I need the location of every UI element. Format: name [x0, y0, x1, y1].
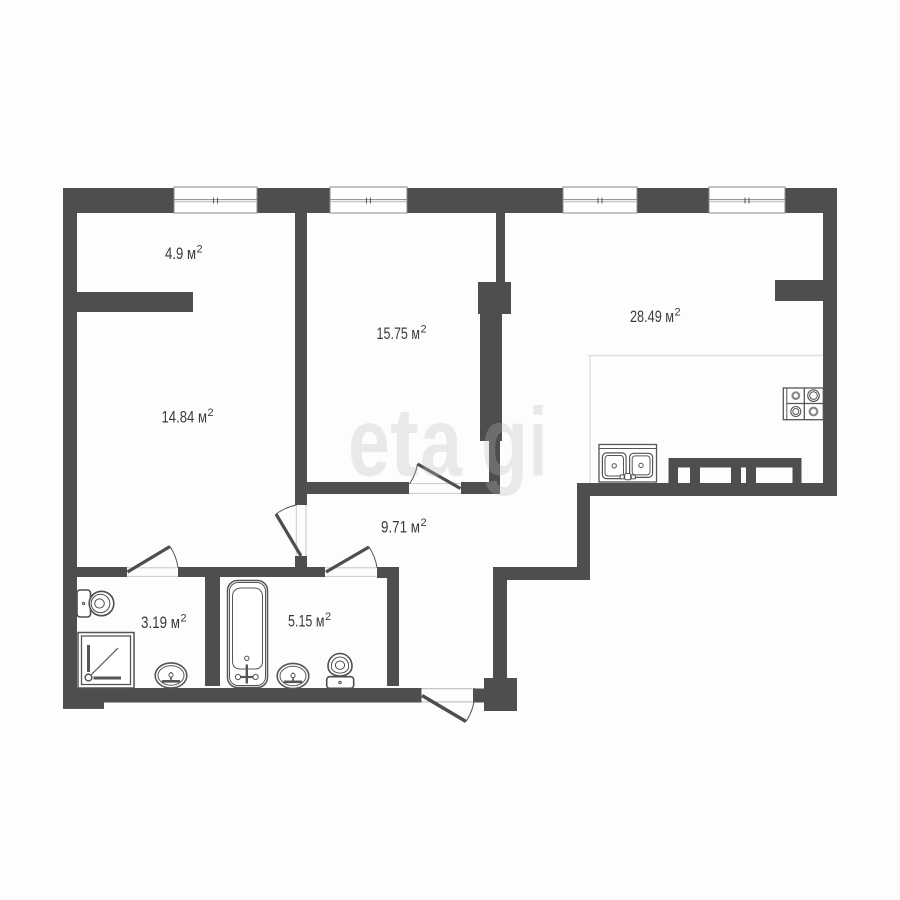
svg-text:a: a [420, 388, 463, 497]
svg-text:2: 2 [421, 324, 427, 336]
svg-text:2: 2 [181, 613, 187, 625]
svg-text:e: e [348, 388, 390, 497]
svg-text:i: i [529, 388, 547, 497]
svg-text:2: 2 [197, 244, 203, 256]
svg-text:4.9 м: 4.9 м [165, 244, 196, 263]
svg-text:28.49 м: 28.49 м [630, 307, 674, 326]
svg-text:5.15 м: 5.15 м [288, 612, 325, 631]
svg-text:2: 2 [421, 517, 427, 529]
svg-text:9.71 м: 9.71 м [381, 518, 420, 537]
svg-text:g: g [481, 388, 528, 497]
svg-text:t: t [390, 388, 419, 497]
svg-text:2: 2 [675, 307, 681, 319]
svg-text:2: 2 [325, 611, 331, 623]
svg-text:14.84 м: 14.84 м [162, 408, 208, 427]
svg-text:2: 2 [208, 407, 214, 419]
svg-text:3.19 м: 3.19 м [141, 613, 180, 632]
svg-text:15.75 м: 15.75 м [377, 324, 421, 343]
